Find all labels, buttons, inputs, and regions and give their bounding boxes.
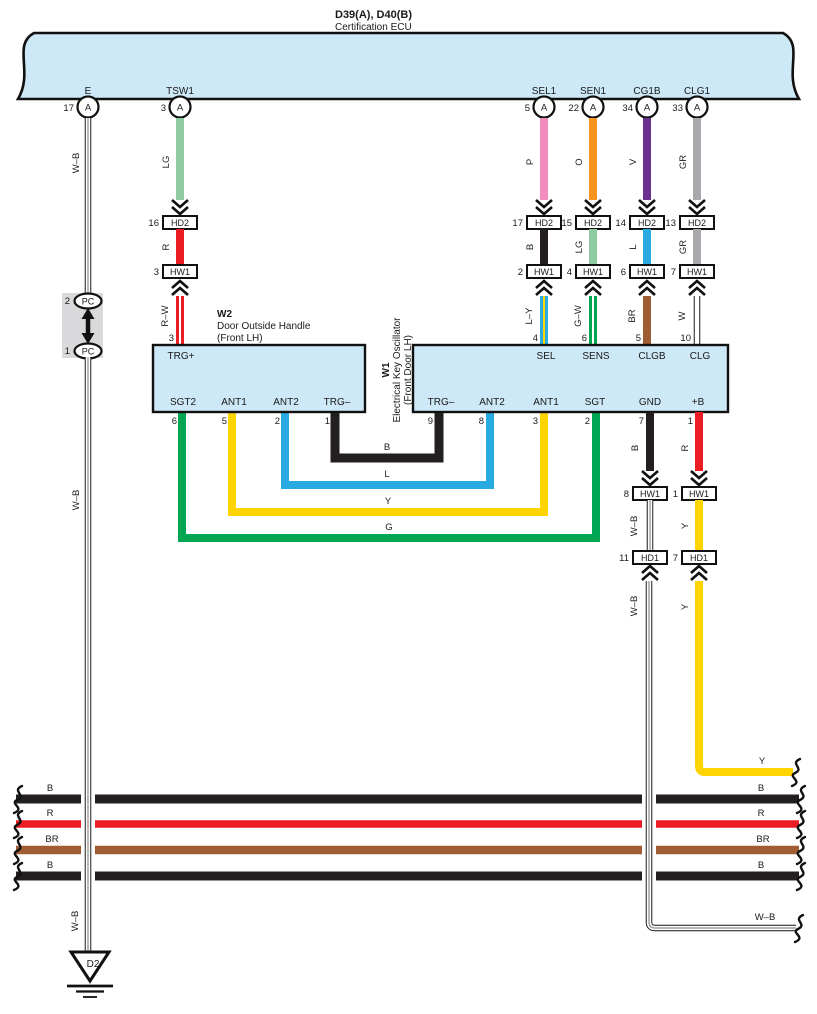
plus-b-branch: R 1 HW1 Y 7 HD1 Y Y (673, 412, 800, 786)
wire-label: Y (759, 756, 766, 767)
pin-number: 9 (428, 416, 433, 427)
connector-pin: 11 (619, 553, 629, 564)
connector-name: HW1 (583, 267, 603, 277)
pin-label: CLGB (638, 351, 666, 362)
pin-number: 3 (533, 416, 538, 427)
pin-label: SGT (585, 397, 606, 408)
wire-y-run (699, 581, 793, 772)
pin-label: SGT2 (170, 397, 197, 408)
connector-pin: 7 (673, 553, 678, 564)
connector-letter: A (177, 103, 184, 114)
ecu-pin-tsw1: TSW1 3 A (161, 86, 195, 118)
wire-label: R (680, 444, 691, 451)
component-name: Door Outside Handle (217, 321, 311, 332)
connector-letter: A (694, 103, 701, 114)
pin-label: TRG– (428, 397, 455, 408)
pc-bot-label: PC (82, 347, 95, 357)
wire-label: W–B (71, 490, 82, 511)
certification-ecu-band (18, 33, 799, 99)
chevron-down-icon (536, 200, 552, 214)
pin-number: 1 (688, 416, 693, 427)
connector-name: HD2 (584, 218, 602, 228)
pin-number: 22 (568, 103, 579, 114)
wire-label: B (384, 442, 390, 453)
pc-top-label: PC (82, 297, 95, 307)
connector-letter: A (590, 103, 597, 114)
wire-label: W–B (70, 911, 81, 932)
chevron-up-icon (536, 281, 552, 295)
chevron-up-icon (689, 281, 705, 295)
wire-label: BR (756, 834, 769, 845)
chevron-down-icon (689, 200, 705, 214)
cg1b-branch: V 14 HD2 L 6 HW1 BR 5 (615, 118, 664, 345)
sel1-branch: P 17 HD2 B 2 HW1 L–Y 4 (512, 118, 561, 345)
connector-pin: 13 (665, 218, 676, 229)
wire-label: G–W (573, 305, 584, 327)
connector-name: HW1 (637, 267, 657, 277)
pin-number: 1 (325, 416, 330, 427)
wire-label: B (47, 783, 53, 794)
chevron-up-icon (691, 566, 707, 580)
gnd-branch: B 8 HW1 W–B 11 HD1 W–B (619, 412, 667, 616)
pin-label: CLG (690, 351, 711, 362)
gnd-wb-run: W–B (649, 581, 803, 942)
wiring-diagram: D39(A), D40(B) Certification ECU E 17 A … (0, 0, 817, 1009)
connector-pin: 16 (148, 218, 159, 229)
connector-name: HW1 (687, 267, 707, 277)
connector-name: HD1 (690, 553, 708, 563)
w1-box (413, 345, 728, 412)
wire-label: GR (678, 155, 689, 169)
pin-label: +B (692, 397, 705, 408)
wire-label: R (161, 243, 172, 250)
pin-label: ANT2 (479, 397, 505, 408)
pin-label: ANT2 (273, 397, 299, 408)
wire-label: W–B (629, 516, 640, 537)
component-id: W2 (217, 309, 232, 320)
pin-label: SEN1 (580, 86, 607, 97)
wire-label: GR (678, 240, 689, 254)
connector-pin: 2 (518, 267, 523, 278)
wire-label: W–B (755, 912, 776, 923)
connector-name: HD1 (641, 553, 659, 563)
connector-letter: A (644, 103, 651, 114)
pin-label: ANT1 (221, 397, 247, 408)
component-id: W1 (381, 362, 392, 377)
connector-pin: 6 (621, 267, 626, 278)
pin-label: SEL1 (532, 86, 557, 97)
pin-label: SEL (537, 351, 556, 362)
connector-pin: 15 (561, 218, 572, 229)
pin-label: E (85, 86, 92, 97)
connector-pin: 8 (624, 489, 629, 500)
connector-name: HW1 (534, 267, 554, 277)
wire-label: B (758, 860, 764, 871)
connector-name: HD2 (535, 218, 553, 228)
wire-label: B (758, 783, 764, 794)
wire-label: LG (574, 241, 585, 254)
connector-letter: A (541, 103, 548, 114)
tsw1-branch: LG 16 HD2 R 3 HW1 R–W 3 (148, 118, 197, 345)
pin-number: 2 (585, 416, 590, 427)
wire-label: L–Y (524, 307, 535, 325)
wire-label: B (525, 244, 536, 250)
wire-label: B (47, 860, 53, 871)
pc-top-pin: 2 (65, 296, 70, 307)
break-icon (792, 759, 800, 786)
wire-label: O (574, 158, 585, 165)
break-icon (795, 915, 803, 942)
wire-label: W–B (629, 596, 640, 617)
dest-pin-number: 6 (582, 333, 587, 344)
connector-name: HW1 (689, 489, 709, 499)
connector-letter: A (85, 103, 92, 114)
chevron-up-icon (639, 281, 655, 295)
wire-label: Y (680, 603, 691, 610)
wire-label: LG (161, 156, 172, 169)
chevron-up-icon (642, 566, 658, 580)
pin-number: 3 (161, 103, 166, 114)
connector-pin: 14 (615, 218, 626, 229)
component-name: Electrical Key Oscillator (392, 317, 403, 423)
pin-number: 8 (479, 416, 484, 427)
chevron-down-icon (172, 200, 188, 214)
ground-id: D2 (87, 959, 100, 970)
chevron-up-icon (172, 281, 188, 295)
pin-number: 33 (672, 103, 683, 114)
connector-name: HW1 (640, 489, 660, 499)
w1-electrical-key-oscillator: W1 Electrical Key Oscillator (Front Door… (381, 317, 728, 427)
wiring-diagram-page: D39(A), D40(B) Certification ECU E 17 A … (0, 0, 817, 1009)
connector-name: HD2 (171, 218, 189, 228)
connector-pin: 17 (512, 218, 523, 229)
wire-label: V (628, 158, 639, 165)
pin-label: TSW1 (166, 86, 194, 97)
wire-label: P (525, 159, 536, 165)
connector-pin: 1 (673, 489, 678, 500)
component-name2: (Front LH) (217, 333, 263, 344)
pin-label: CG1B (633, 86, 661, 97)
dest-pin-number: 5 (636, 333, 641, 344)
wire-label: L (384, 469, 389, 480)
wire-label: B (630, 445, 641, 451)
pin-label: CLG1 (684, 86, 711, 97)
pin-number: 2 (275, 416, 280, 427)
wire-label: G (385, 522, 392, 533)
pin-number: 17 (63, 103, 74, 114)
loop-wires: B L Y G (182, 412, 596, 538)
connector-name: HD2 (638, 218, 656, 228)
chevron-down-icon (585, 200, 601, 214)
wire-label: Y (385, 496, 392, 507)
wire-label: R–W (160, 305, 171, 326)
pin-number: 6 (172, 416, 177, 427)
clg1-branch: GR 13 HD2 GR 7 HW1 W 10 (665, 118, 714, 345)
e-branch-lower: W–B W–B (70, 357, 88, 954)
pin-number: 5 (525, 103, 530, 114)
w2-door-outside-handle: W2 Door Outside Handle (Front LH) TRG+ S… (153, 309, 365, 427)
chevron-down-icon (691, 471, 707, 485)
connector-pin: 7 (671, 267, 676, 278)
wire-label: L (628, 244, 639, 249)
pin-number: 7 (639, 416, 644, 427)
connector-pin: 3 (154, 267, 159, 278)
ground-symbol: D2 (67, 952, 113, 997)
ecu-name: Certification ECU (335, 22, 412, 33)
wire-label: W–B (71, 153, 82, 174)
wire-label: W (677, 311, 688, 320)
wire-label: R (47, 808, 54, 819)
pin-label: TRG– (324, 397, 351, 408)
connector-name: HD2 (688, 218, 706, 228)
pin-label: ANT1 (533, 397, 559, 408)
chevron-down-icon (639, 200, 655, 214)
pc-connector: 2 PC 1 PC (62, 293, 103, 359)
pin-label: GND (639, 397, 661, 408)
wire-label: BR (45, 834, 58, 845)
sen1-branch: O 15 HD2 LG 4 HW1 G–W 6 (561, 118, 610, 345)
wire-label: Y (680, 522, 691, 529)
pin-label: TRG+ (168, 351, 195, 362)
ecu-code: D39(A), D40(B) (335, 9, 412, 21)
wire-label: R (758, 808, 765, 819)
pc-bot-pin: 1 (65, 346, 70, 357)
connector-pin: 4 (567, 267, 572, 278)
pin-number: 34 (622, 103, 633, 114)
dest-pin-number: 10 (680, 333, 691, 344)
e-branch-upper: W–B (71, 118, 88, 295)
pin-number: 5 (222, 416, 227, 427)
pin-label: SENS (582, 351, 610, 362)
connector-name: HW1 (170, 267, 190, 277)
chevron-down-icon (642, 471, 658, 485)
dest-pin-number: 4 (533, 333, 538, 344)
wire-label: BR (627, 309, 638, 322)
bus-wires: B B R R BR BR B B (14, 783, 805, 890)
dest-pin-number: 3 (169, 333, 174, 344)
chevron-up-icon (585, 281, 601, 295)
